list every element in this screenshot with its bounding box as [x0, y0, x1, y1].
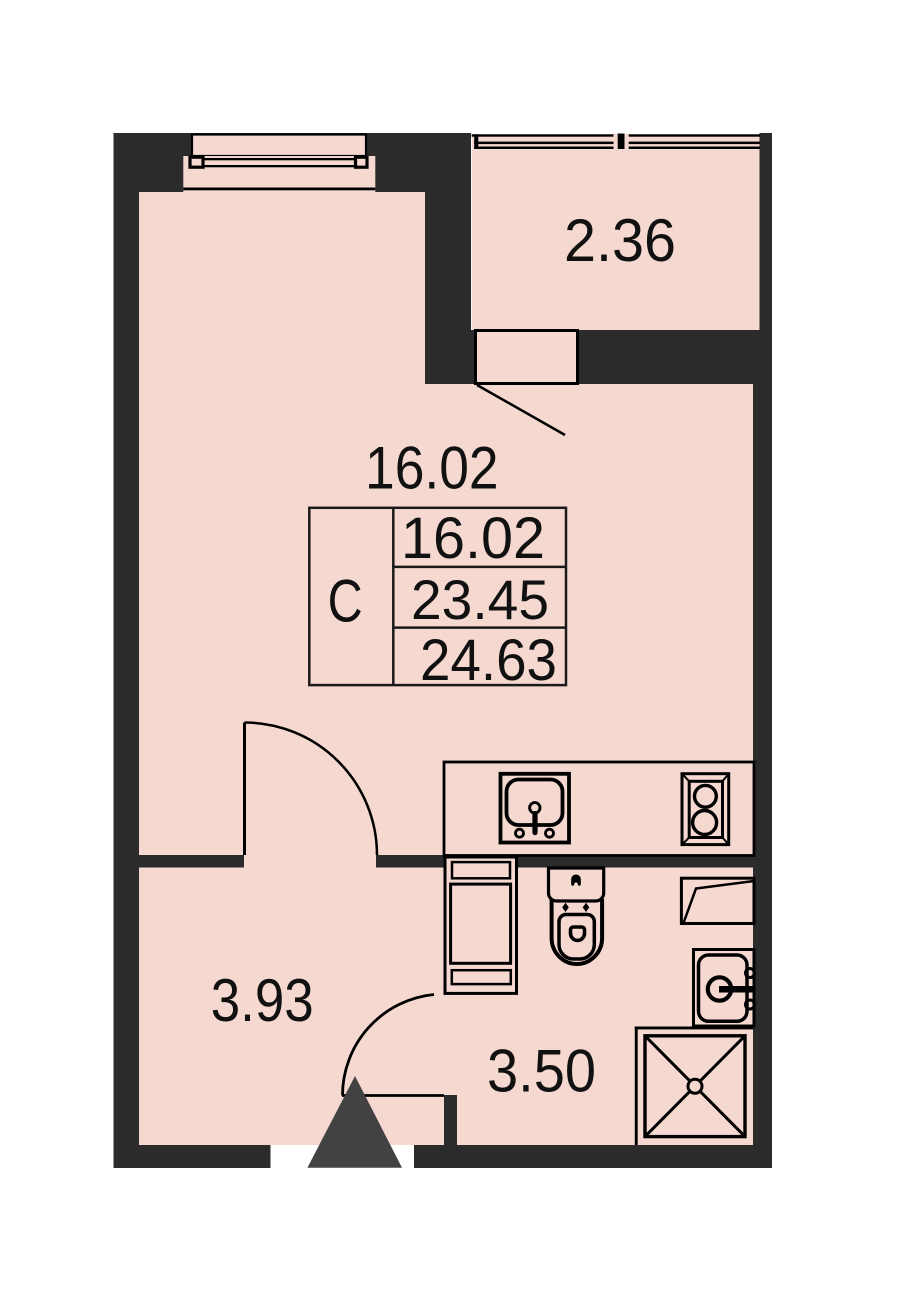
svg-text:16.02: 16.02: [365, 435, 499, 502]
svg-text:3.93: 3.93: [211, 967, 314, 1034]
svg-text:С: С: [328, 568, 363, 635]
svg-text:2.36: 2.36: [564, 207, 676, 274]
svg-text:23.45: 23.45: [411, 568, 549, 631]
svg-text:16.02: 16.02: [401, 506, 545, 571]
svg-text:24.63: 24.63: [420, 628, 557, 693]
svg-text:3.50: 3.50: [487, 1038, 596, 1105]
